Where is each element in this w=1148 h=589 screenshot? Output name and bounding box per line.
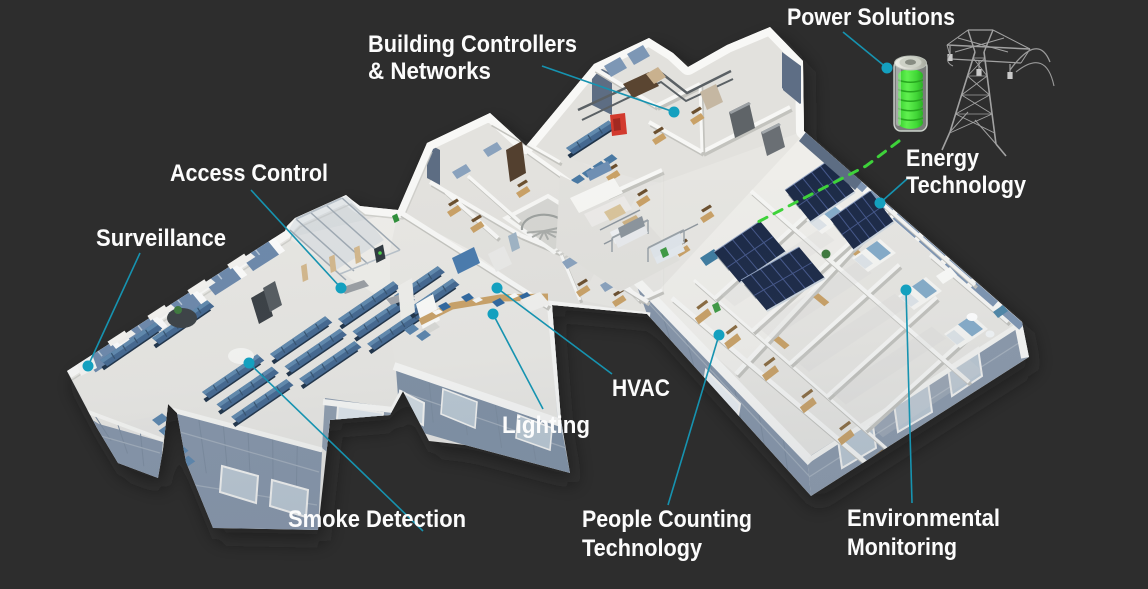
svg-text:Building Controllers: Building Controllers — [368, 31, 577, 58]
svg-text:Access Control: Access Control — [170, 160, 328, 187]
svg-text:Smoke Detection: Smoke Detection — [288, 506, 466, 533]
svg-text:Environmental: Environmental — [847, 505, 1000, 532]
svg-text:People Counting: People Counting — [582, 506, 752, 533]
svg-text:Lighting: Lighting — [502, 412, 590, 439]
svg-text:Power Solutions: Power Solutions — [787, 4, 955, 31]
svg-text:HVAC: HVAC — [612, 375, 670, 402]
svg-text:Technology: Technology — [906, 172, 1027, 199]
svg-text:& Networks: & Networks — [368, 58, 491, 85]
svg-text:Surveillance: Surveillance — [96, 225, 226, 252]
svg-text:Energy: Energy — [906, 145, 980, 172]
svg-text:Monitoring: Monitoring — [847, 534, 957, 561]
svg-text:Technology: Technology — [582, 535, 703, 562]
